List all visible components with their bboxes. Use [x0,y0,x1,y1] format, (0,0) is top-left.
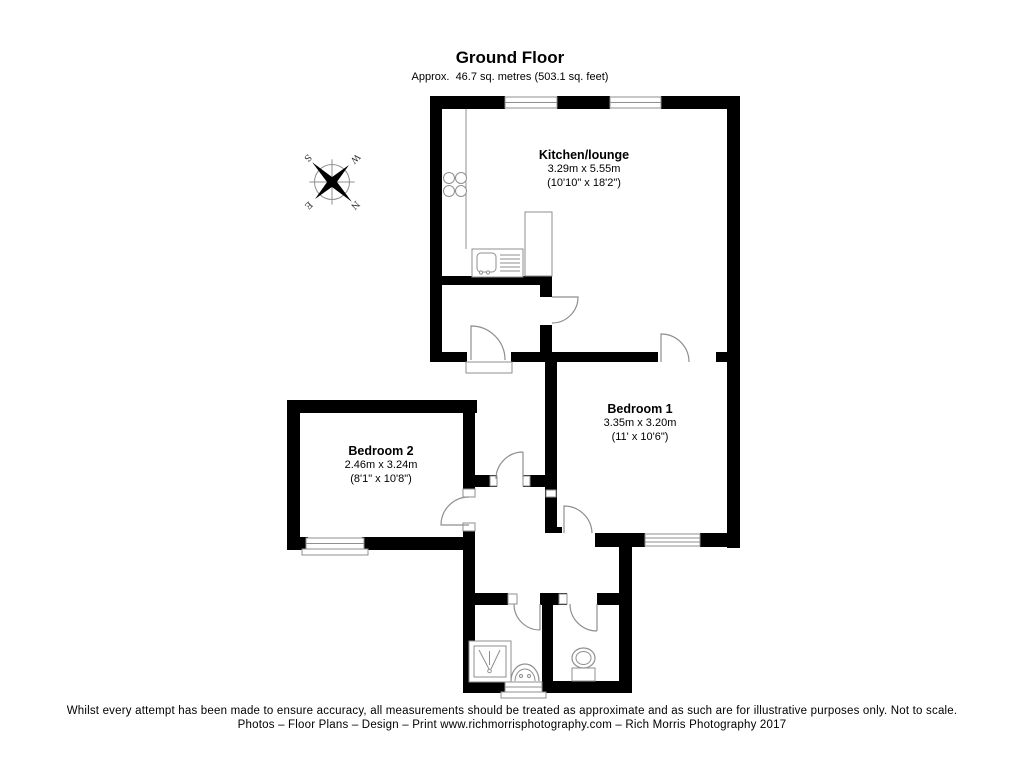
compass-e-label: E [302,199,314,211]
compass-rose: N S E W [278,127,385,234]
wall [542,598,553,693]
room-dimensions-metric: 3.29m x 5.55m [484,162,684,176]
compass-w-label: W [347,151,361,165]
door-jamb [463,523,475,531]
front-door [466,326,512,373]
inner-hall-door [496,452,523,479]
room-name: Bedroom 1 [542,402,738,416]
bedroom-1-door-lower [564,506,592,533]
wall [430,352,467,362]
wall [287,400,477,413]
shower-tray [469,641,511,682]
wall [727,96,740,548]
wall [619,533,632,693]
wall [545,527,562,533]
plan-title-block: Ground Floor Approx. 46.7 sq. metres (50… [362,48,658,83]
hob [444,173,467,197]
wall [540,276,552,297]
kitchen-window-1 [505,97,557,108]
room-name: Kitchen/lounge [484,148,684,162]
wall [542,681,631,693]
bedroom-2-window [302,538,368,555]
floor-plan-drawing: N S E W [0,0,1024,768]
kitchen-window-2 [610,97,661,108]
wall [463,593,508,605]
toilet [572,648,595,681]
wall [287,537,308,550]
room-name: Bedroom 2 [283,444,479,458]
wash-basin [511,664,539,681]
bedroom-1-label: Bedroom 1 3.35m x 3.20m (11' x 10'6") [542,402,738,444]
door-jamb [559,594,567,604]
door-jamb [546,490,556,497]
wall [716,352,732,362]
room-dimensions-imperial: (11' x 10'6") [542,430,738,444]
wall [511,352,658,362]
page-title: Ground Floor [362,48,658,68]
door-jamb [523,476,530,486]
kitchen-door [552,297,578,323]
kitchen-label: Kitchen/lounge 3.29m x 5.55m (10'10" x 1… [484,148,684,190]
bedroom-1-window [645,534,700,546]
door-jamb [463,489,475,497]
wall [463,681,505,693]
disclaimer-text: Whilst every attempt has been made to en… [0,705,1024,717]
wall [430,96,442,362]
shower-room-window [501,682,546,698]
wall [362,537,465,550]
room-dimensions-metric: 3.35m x 3.20m [542,416,738,430]
kitchen-sink [472,249,523,277]
bedroom-1-door-upper [661,334,689,362]
door-jambs [463,476,567,604]
breakfast-counter [525,212,552,276]
compass-s-label: S [302,152,313,163]
footer: Whilst every attempt has been made to en… [0,705,1024,731]
wall [545,362,557,527]
wc-door [570,604,597,631]
floor-plan-page: N S E W Ground Floor Approx. 46.7 sq. me… [0,0,1024,768]
bedroom-2-door [441,497,469,525]
page-subtitle: Approx. 46.7 sq. metres (503.1 sq. feet) [362,71,658,83]
wall [557,96,610,109]
room-dimensions-metric: 2.46m x 3.24m [283,458,479,472]
room-dimensions-imperial: (10'10" x 18'2") [484,176,684,190]
wall [700,533,727,547]
credit-text: Photos – Floor Plans – Design – Print ww… [0,719,1024,731]
door-jamb [508,594,517,604]
shower-room-door [514,604,540,630]
bedroom-2-label: Bedroom 2 2.46m x 3.24m (8'1" x 10'8") [283,444,479,486]
room-dimensions-imperial: (8'1" x 10'8") [283,472,479,486]
wall [597,593,632,605]
